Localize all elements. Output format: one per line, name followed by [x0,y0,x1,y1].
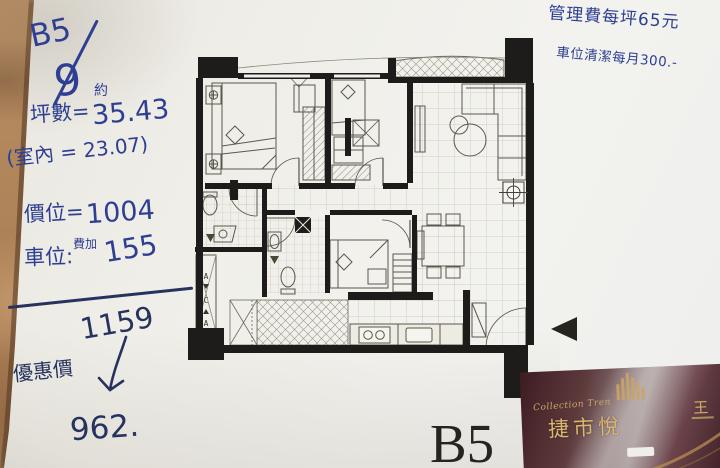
floor-plan: A C A [182,28,547,400]
card-agent-name: 王 [693,396,709,418]
note-parking-value: 155 [102,231,159,267]
balcony-top [394,56,504,77]
note-area-label: 坪數= [29,101,90,126]
down-arrow-icon [96,334,138,400]
card-gold-swoosh [600,418,720,468]
photo-of-flyer: B5 9 約 坪數= 35.43 (室內 = 23.07) 價位= 1004 車… [0,0,720,468]
note-unit-code: B5 [27,14,74,53]
note-parking-label: 車位: [24,246,74,269]
shaft-letter: C [204,296,209,305]
shaft-letter: A [204,272,209,281]
building-icon [608,369,655,401]
note-price-value: 1004 [85,197,155,229]
plan-unit-label: B5 [430,412,494,468]
balcony-bottom [230,300,348,345]
entrance-arrow-icon [551,317,577,341]
note-price-label: 價位= [23,201,84,225]
brochure-card: Collection Tren 捷市悅 王 [520,363,720,468]
note-discount-value: 962. [69,411,140,447]
note-discount-label: 優惠價 [12,358,74,384]
note-parking-note: 費加 [73,238,97,250]
bedroom-1 [206,83,325,180]
note-unit-floor: 9 [52,59,84,105]
note-approx-mark: 約 [94,84,108,98]
bedroom-3 [330,240,412,292]
duct-square [353,120,379,146]
shaft-letter: A [204,319,209,328]
note-area-value: 35.43 [91,96,170,130]
crosshair-symbol [499,178,528,207]
